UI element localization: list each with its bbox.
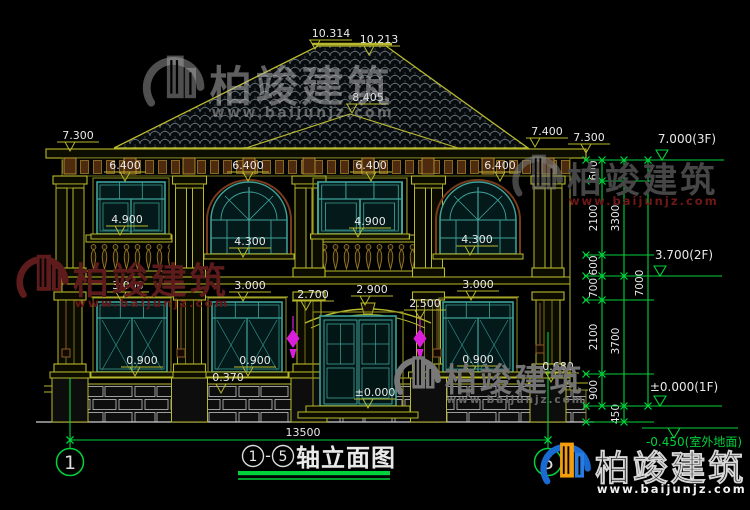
door-step-2 <box>298 412 418 418</box>
watermark: 柏竣建筑www.baijunjz.com <box>544 443 747 497</box>
title-separator: - <box>265 446 271 465</box>
bottom-dimension: 13500 <box>67 426 552 444</box>
dim-text: 0.900 <box>126 354 158 367</box>
dim-text: ±0.000 <box>355 386 396 399</box>
level-marker: ±0.000(1F) <box>646 380 722 406</box>
dim-label: 7.400 <box>526 125 568 147</box>
title-axis-start: 1 <box>249 449 258 465</box>
dim-label: 2.900 <box>351 283 393 305</box>
arch-window-2f-bay4 <box>433 180 523 259</box>
chain-dim-text: 2100 <box>588 205 600 232</box>
axis-number: 1 <box>64 452 76 474</box>
dim-text: 7.300 <box>62 129 94 142</box>
fascia-band <box>46 149 586 158</box>
chain-dim-text: 900 <box>588 380 600 400</box>
elevation-drawing: 7.000(3F)3.700(2F)±0.000(1F)-0.450(室外地面)… <box>0 0 750 510</box>
window-2f-bay3 <box>311 178 410 239</box>
dim-text: 6.400 <box>109 159 141 172</box>
chain-dim-text: 7000 <box>634 270 646 297</box>
watermark-url-text: www.baijunjz.com <box>569 194 719 208</box>
dim-text: 6.400 <box>232 159 264 172</box>
dim-text: 10.213 <box>360 33 399 46</box>
dim-text: 0.370 <box>212 371 244 384</box>
level-marker: 7.000(3F) <box>646 132 724 160</box>
balustrade-center <box>313 235 423 277</box>
dim-text: 6.400 <box>484 159 516 172</box>
watermark-url-text: www.baijunjz.com <box>446 393 584 406</box>
window-2f-bay1 <box>91 178 171 239</box>
title-axis-end: 5 <box>279 449 288 465</box>
level-text: ±0.000(1F) <box>650 380 718 394</box>
bottom-dim-text: 13500 <box>286 426 321 439</box>
dim-text: 7.400 <box>531 125 563 138</box>
dim-label: 6.400 <box>227 159 269 181</box>
dim-text: 4.900 <box>111 213 143 226</box>
level-marker: -0.450(室外地面) <box>642 428 742 449</box>
chain-dim-text: 700 <box>588 278 600 298</box>
dim-text: 4.300 <box>461 233 493 246</box>
dim-text: 6.400 <box>355 159 387 172</box>
dim-text: 10.314 <box>312 27 351 40</box>
level-text: 3.700(2F) <box>655 248 713 262</box>
chain-dim-text: 3700 <box>610 328 622 355</box>
dim-text: 3.000 <box>234 279 266 292</box>
watermark-url-text: www.baijunjz.com <box>75 296 230 310</box>
dim-text: 2.500 <box>409 297 441 310</box>
chain-dim-text: 3300 <box>610 205 622 232</box>
level-text: -0.450(室外地面) <box>646 434 742 449</box>
dim-text: 7.300 <box>573 131 605 144</box>
cad-elevation-screenshot: 7.000(3F)3.700(2F)±0.000(1F)-0.450(室外地面)… <box>0 0 750 510</box>
title-block: 1-5轴立面图 <box>238 444 396 479</box>
watermark-url-text: www.baijunjz.com <box>212 105 394 121</box>
baijun-logo-icon <box>147 56 201 103</box>
watermark-url-text: www.baijunjz.com <box>597 482 747 496</box>
level-text: 7.000(3F) <box>658 132 716 146</box>
chain-dim-text: 600 <box>588 255 600 275</box>
door-step-1 <box>306 406 410 412</box>
dim-text: 0.900 <box>239 354 271 367</box>
dim-text: 4.900 <box>354 215 386 228</box>
dim-text: 2.700 <box>297 288 329 301</box>
dim-text: 2.900 <box>356 283 388 296</box>
dim-text: 4.300 <box>234 235 266 248</box>
title-text: 轴立面图 <box>296 444 396 472</box>
watermark: 柏竣建筑www.baijunjz.com <box>20 255 230 310</box>
drawing-title: 1-5轴立面图 <box>238 444 396 479</box>
watermark: 柏竣建筑www.baijunjz.com <box>147 56 394 122</box>
chain-dim-text: 450 <box>610 404 622 424</box>
dim-label: 7.300 <box>57 129 99 151</box>
level-marker: 3.700(2F) <box>646 248 722 276</box>
dim-text: 3.000 <box>462 278 494 291</box>
chain-dim-text: 2100 <box>588 324 600 351</box>
